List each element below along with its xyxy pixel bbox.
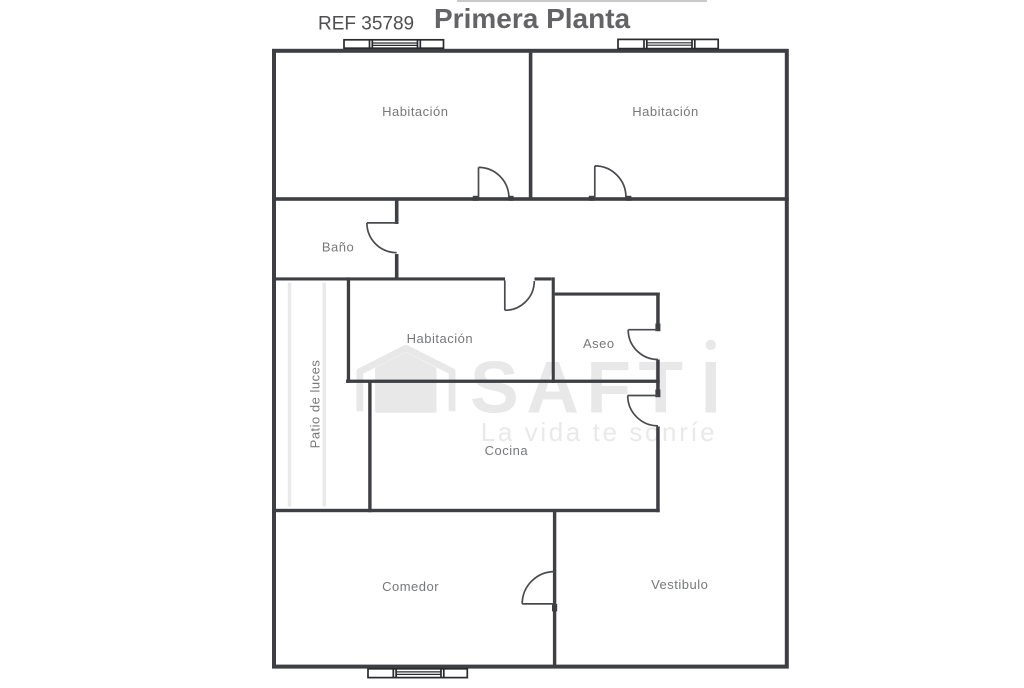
svg-text:Aseo: Aseo [583,336,615,351]
svg-text:Vestibulo: Vestibulo [651,577,708,592]
svg-text:Patio de luces: Patio de luces [307,360,322,449]
svg-text:Primera Planta: Primera Planta [434,3,631,34]
svg-text:Cocina: Cocina [485,443,529,458]
svg-text:Habitación: Habitación [382,104,448,119]
svg-text:Comedor: Comedor [382,579,439,594]
svg-text:REF 35789: REF 35789 [318,14,414,35]
svg-text:Baño: Baño [322,239,354,254]
svg-text:Habitación: Habitación [632,104,698,119]
svg-text:Habitación: Habitación [407,331,473,346]
